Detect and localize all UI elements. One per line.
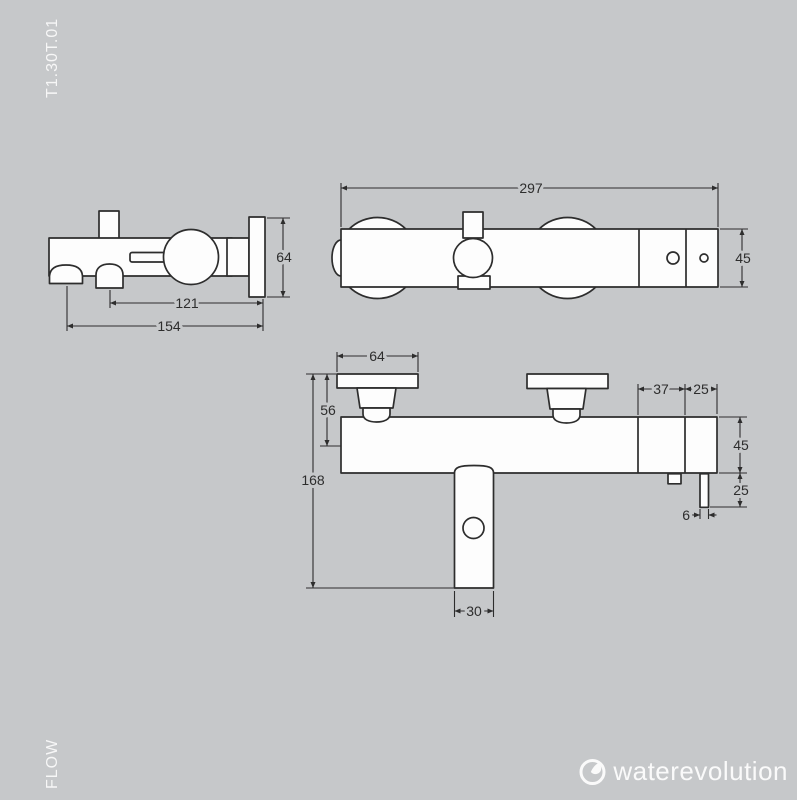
- top-screw-hole-large: [667, 252, 679, 264]
- side-dim-plate-height: 64: [267, 218, 292, 297]
- side-dim-outlet-to-wall: 121: [110, 290, 263, 331]
- side-handle-knob: [164, 230, 219, 285]
- brand-logo: waterevolution: [577, 756, 788, 787]
- dim-label-top-297: 297: [519, 180, 543, 196]
- brand-name: waterevolution: [613, 756, 788, 787]
- front-body-bar: [341, 417, 717, 473]
- front-drain-rod: [700, 474, 709, 508]
- dim-label-top-45: 45: [735, 250, 751, 266]
- dim-label-front-56: 56: [320, 402, 336, 418]
- dim-label-side-154: 154: [157, 318, 181, 334]
- top-dim-total-width: 297: [341, 180, 718, 227]
- front-nut-right: [553, 409, 580, 423]
- front-dim-right-segments: 37 25: [638, 381, 717, 415]
- drawing-sheet: T1.30T.01 FLOW 64: [0, 0, 797, 800]
- top-diverter-knob: [463, 212, 483, 238]
- dim-label-front-168: 168: [301, 472, 325, 488]
- front-nut-left: [363, 408, 390, 422]
- front-dim-rod-width: 6: [682, 507, 716, 523]
- side-wall-plate: [249, 217, 265, 297]
- front-spout-hole: [463, 518, 484, 539]
- technical-drawing: 64 121 154: [0, 0, 797, 800]
- front-view: 64 56 168 30: [301, 348, 749, 619]
- front-dim-body-height: 45: [719, 417, 749, 473]
- side-cartridge: [227, 238, 249, 276]
- dim-label-front-6: 6: [682, 507, 690, 523]
- dim-label-front-25b: 25: [733, 482, 749, 498]
- side-view: 64 121 154: [49, 211, 292, 334]
- top-handle-knob: [454, 239, 493, 278]
- front-bottom-tab: [668, 474, 681, 484]
- dim-label-front-25a: 25: [693, 381, 709, 397]
- top-screw-hole-small: [700, 254, 708, 262]
- dim-label-front-45: 45: [733, 437, 749, 453]
- dim-label-front-64: 64: [369, 348, 385, 364]
- front-connector-right: [547, 389, 586, 410]
- front-wall-flange-left: [337, 374, 418, 388]
- dim-label-front-37: 37: [653, 381, 669, 397]
- front-wall-flange-right: [527, 374, 608, 389]
- water-drop-icon: [577, 756, 608, 787]
- front-dim-flange-width: 64: [337, 348, 418, 372]
- dim-label-side-height: 64: [276, 249, 292, 265]
- side-diverter-knob: [99, 211, 119, 239]
- front-dim-flange-to-axis: 56: [306, 374, 341, 446]
- top-dim-body-depth: 45: [720, 229, 751, 287]
- side-shower-outlet: [96, 264, 123, 288]
- dim-label-front-30: 30: [466, 603, 482, 619]
- front-connector-left: [357, 388, 396, 408]
- top-view: 297 45: [332, 180, 751, 299]
- front-dim-rod-drop: 25: [710, 473, 749, 507]
- top-body-bar: [341, 229, 718, 287]
- side-spout-outlet: [50, 265, 83, 284]
- side-dim-total-depth: 154: [67, 286, 263, 334]
- front-dim-spout-width: 30: [455, 591, 494, 619]
- dim-label-side-121: 121: [175, 295, 199, 311]
